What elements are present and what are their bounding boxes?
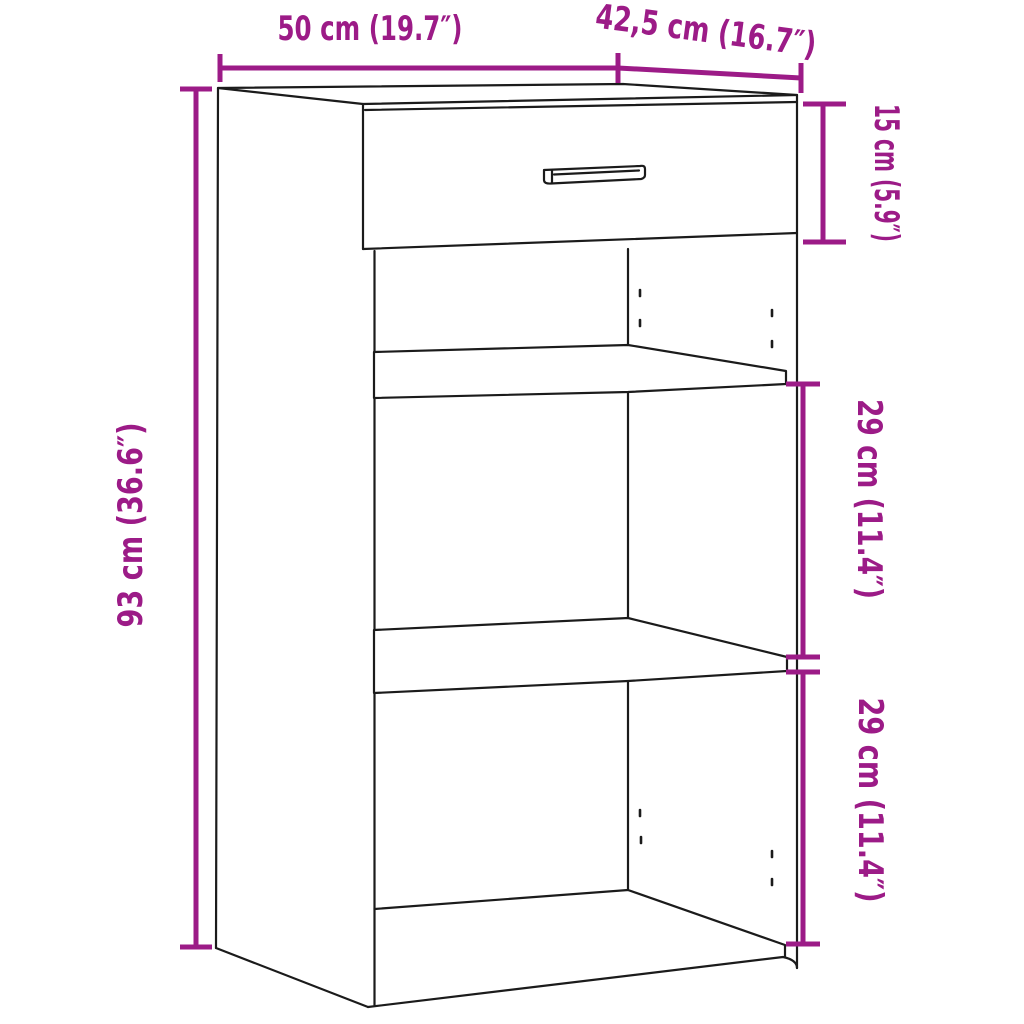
dimension-width-line — [220, 53, 618, 83]
dimension-upper-compartment-line — [786, 384, 820, 657]
floor-right-edge — [628, 890, 785, 957]
dimension-depth: 42,5 cm (16.7″) — [593, 0, 818, 93]
drawer-handle — [544, 166, 645, 184]
shelf-upper — [374, 345, 786, 398]
handle-inner-line — [554, 171, 639, 175]
dimension-drawer-height-label: 15 cm (5.9″) — [866, 104, 906, 242]
dimension-width: 50 cm (19.7″) — [220, 9, 618, 83]
dimension-annotations: 50 cm (19.7″) 42,5 cm (16.7″) 15 cm (5.9… — [111, 0, 906, 947]
product-dimension-diagram: 50 cm (19.7″) 42,5 cm (16.7″) 15 cm (5.9… — [0, 0, 1024, 1024]
bottom-front-edge — [368, 957, 797, 1007]
dimension-width-label: 50 cm (19.7″) — [278, 9, 463, 49]
cabinet-line-drawing — [216, 84, 797, 1007]
dimension-total-height-line — [180, 89, 212, 947]
dimension-total-height-label: 93 cm (36.6″) — [111, 423, 151, 628]
shelf-lower — [374, 618, 787, 693]
dimension-drawer-height: 15 cm (5.9″) — [803, 104, 906, 242]
dimension-depth-label: 42,5 cm (16.7″) — [593, 0, 818, 65]
dimension-total-height: 93 cm (36.6″) — [111, 89, 212, 947]
left-panel-bottom-edge — [216, 948, 368, 1007]
drawer-bottom-edge — [363, 233, 797, 249]
dimension-lower-compartment-line — [786, 672, 820, 944]
dimension-lower-compartment-label: 29 cm (11.4″) — [850, 698, 890, 903]
cabinet-diagram-svg: 50 cm (19.7″) 42,5 cm (16.7″) 15 cm (5.9… — [0, 0, 1024, 1024]
dimension-upper-compartment-label: 29 cm (11.4″) — [849, 399, 889, 599]
dimension-lower-compartment: 29 cm (11.4″) — [786, 672, 890, 944]
left-outer-edge — [216, 88, 218, 948]
dimension-drawer-height-line — [803, 104, 846, 242]
floor-back-edge — [375, 890, 629, 909]
dimension-upper-compartment: 29 cm (11.4″) — [786, 384, 889, 657]
cabinet-top-face — [218, 84, 797, 104]
